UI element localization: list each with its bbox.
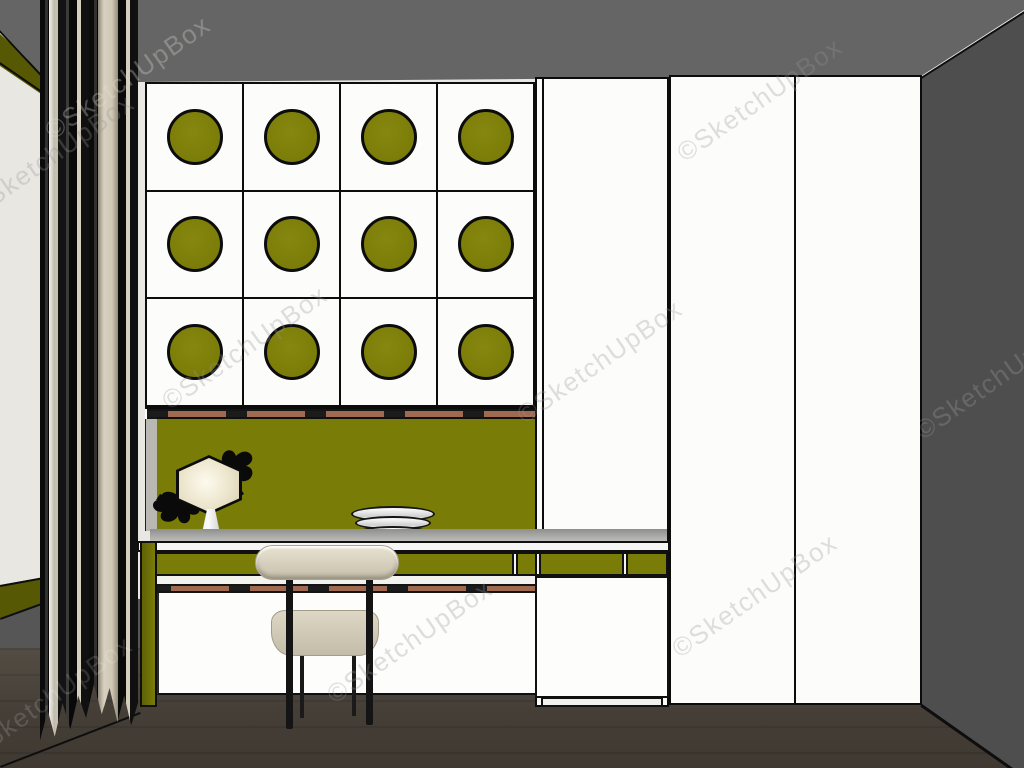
door-circle-panel — [361, 109, 417, 165]
door-circle-panel — [167, 109, 223, 165]
desk-side-panel — [140, 541, 157, 707]
door-circle-panel — [458, 324, 514, 380]
door-circle-panel — [458, 216, 514, 272]
desk-drawer-band — [140, 552, 668, 576]
room-scene: ©SketchUpBox ©SketchUpBox ©SketchUpBox ©… — [0, 0, 1024, 768]
cabinet-door — [147, 84, 242, 190]
cabinet-door — [341, 299, 436, 405]
cabinet-door — [244, 192, 339, 298]
desk-surface — [150, 529, 667, 541]
door-circle-panel — [361, 216, 417, 272]
side-cabinet-plinth — [541, 698, 663, 707]
cabinet-door — [244, 84, 339, 190]
door-circle-panel — [167, 216, 223, 272]
cabinet-door — [147, 192, 242, 298]
cabinet-door — [438, 192, 533, 298]
cabinet-door — [438, 84, 533, 190]
chair-back-leg-left — [286, 557, 293, 729]
chair-backrest — [255, 545, 399, 580]
door-circle-panel — [361, 324, 417, 380]
drawer-divider — [622, 554, 628, 574]
chair-back-leg-right — [366, 557, 373, 725]
drawer-divider — [512, 554, 518, 574]
chair-front-leg-left — [300, 652, 304, 718]
door-circle-panel — [458, 109, 514, 165]
cabinet-door — [438, 299, 533, 405]
cabinet-door — [341, 84, 436, 190]
cabinet-door — [341, 192, 436, 298]
door-circle-panel — [264, 109, 320, 165]
side-cabinet-lower-door — [535, 576, 669, 698]
door-circle-panel — [264, 216, 320, 272]
drawer-divider — [535, 554, 541, 574]
desk-front-edge — [137, 541, 670, 552]
